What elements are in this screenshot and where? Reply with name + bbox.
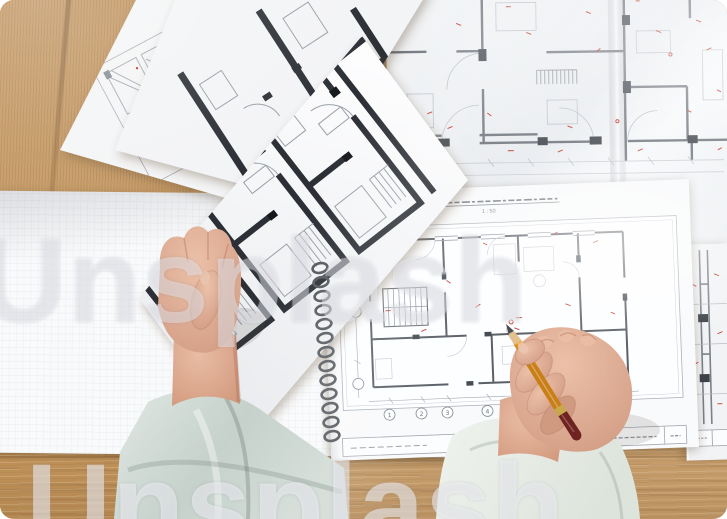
grid-label: 2 xyxy=(420,411,424,418)
grid-label: 4 xyxy=(485,408,489,415)
grid-label: 3 xyxy=(445,410,449,417)
grid-label: 1 xyxy=(388,412,392,419)
plan-scale: 1 : 50 xyxy=(482,208,496,215)
pad-plan-drawing: 1 : 50 xyxy=(321,179,699,461)
spiral-pad: 1 : 50 xyxy=(321,179,699,461)
desk-photo: 1 : 50 xyxy=(0,0,727,519)
wood-seam xyxy=(0,489,727,491)
plan-title: 1 : 50 xyxy=(421,199,559,218)
